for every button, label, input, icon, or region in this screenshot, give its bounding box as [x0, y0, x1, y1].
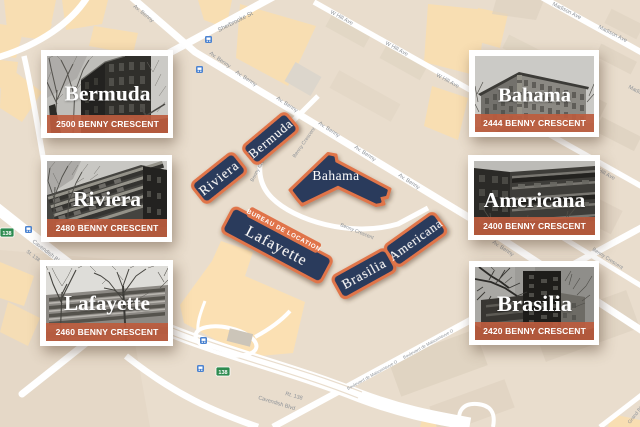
svg-text:Brasilia: Brasilia	[496, 291, 571, 316]
svg-text:2480 BENNY CRESCENT: 2480 BENNY CRESCENT	[55, 223, 158, 233]
svg-text:Bermuda: Bermuda	[64, 81, 150, 105]
svg-text:2460 BENNY CRESCENT: 2460 BENNY CRESCENT	[55, 327, 158, 337]
svg-text:2400 BENNY CRESCENT: 2400 BENNY CRESCENT	[483, 221, 586, 231]
svg-text:138: 138	[218, 370, 227, 376]
svg-text:2420 BENNY CRESCENT: 2420 BENNY CRESCENT	[483, 326, 586, 336]
svg-text:138: 138	[2, 231, 11, 237]
svg-text:Lafayette: Lafayette	[64, 291, 150, 315]
svg-text:Bahama: Bahama	[312, 168, 359, 183]
svg-text:2500 BENNY CRESCENT: 2500 BENNY CRESCENT	[56, 119, 159, 129]
svg-text:Bahama: Bahama	[498, 84, 571, 106]
svg-text:2444 BENNY CRESCENT: 2444 BENNY CRESCENT	[483, 118, 586, 128]
svg-text:Americana: Americana	[483, 187, 585, 211]
svg-text:Riviera: Riviera	[72, 186, 140, 210]
